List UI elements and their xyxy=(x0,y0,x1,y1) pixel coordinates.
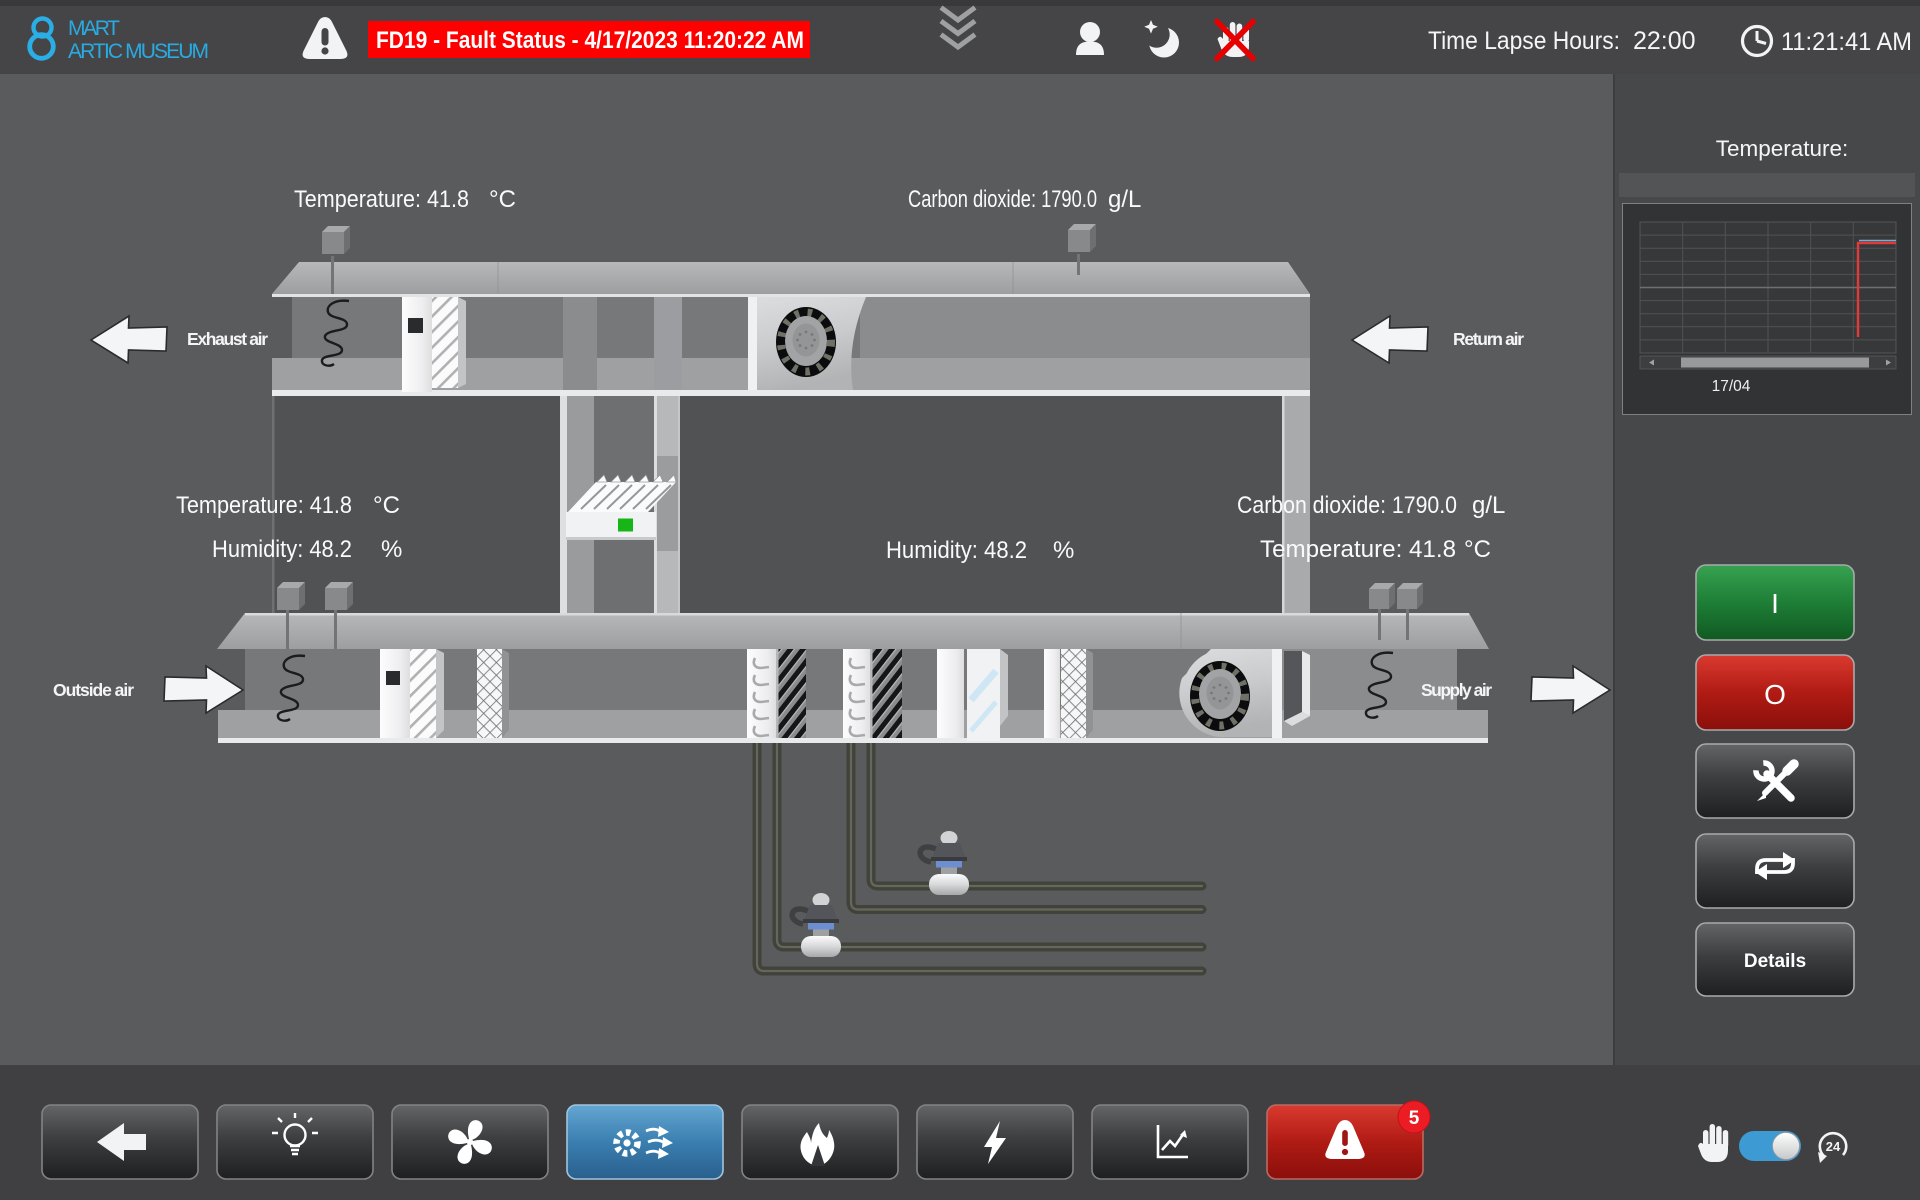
svg-text:Carbon dioxide: 1790.0: Carbon dioxide: 1790.0 xyxy=(908,186,1097,213)
svg-text:°C: °C xyxy=(1464,536,1491,563)
svg-text:FD19 - Fault Status - 4/17/202: FD19 - Fault Status - 4/17/2023 11:20:22… xyxy=(376,27,804,54)
svg-text:°C: °C xyxy=(489,186,516,213)
svg-text:Supply air: Supply air xyxy=(1421,680,1492,700)
svg-text:24: 24 xyxy=(1826,1139,1841,1154)
svg-text:Humidity: 48.2: Humidity: 48.2 xyxy=(212,536,352,563)
svg-text:g/L: g/L xyxy=(1472,492,1505,519)
svg-text:MART: MART xyxy=(68,17,120,40)
svg-text:ARTIC MUSEUM: ARTIC MUSEUM xyxy=(68,40,209,63)
svg-text:Temperature: 41.8: Temperature: 41.8 xyxy=(176,492,352,519)
svg-text:O: O xyxy=(1764,679,1786,710)
svg-text:Return air: Return air xyxy=(1453,329,1524,349)
svg-text:Temperature: 41.8: Temperature: 41.8 xyxy=(1260,536,1456,563)
svg-text:Time Lapse Hours:: Time Lapse Hours: xyxy=(1428,27,1620,55)
svg-text:%: % xyxy=(1053,537,1074,564)
svg-text:Exhaust air: Exhaust air xyxy=(187,329,268,349)
svg-text:Details: Details xyxy=(1744,951,1806,972)
svg-text:g/L: g/L xyxy=(1108,186,1141,213)
svg-text:Carbon dioxide: 1790.0: Carbon dioxide: 1790.0 xyxy=(1237,492,1457,519)
svg-text:11:21:41 AM: 11:21:41 AM xyxy=(1781,28,1912,56)
svg-text:Humidity: 48.2: Humidity: 48.2 xyxy=(886,537,1027,564)
svg-text:Temperature:: Temperature: xyxy=(1716,136,1849,161)
svg-text:Outside air: Outside air xyxy=(53,680,134,700)
svg-text:22:00: 22:00 xyxy=(1633,27,1696,55)
svg-text:5: 5 xyxy=(1409,1108,1420,1129)
svg-text:%: % xyxy=(381,536,402,563)
svg-text:17/04: 17/04 xyxy=(1712,378,1751,395)
svg-text:I: I xyxy=(1771,588,1779,619)
svg-text:Temperature: 41.8: Temperature: 41.8 xyxy=(294,186,469,213)
svg-text:°C: °C xyxy=(373,492,400,519)
